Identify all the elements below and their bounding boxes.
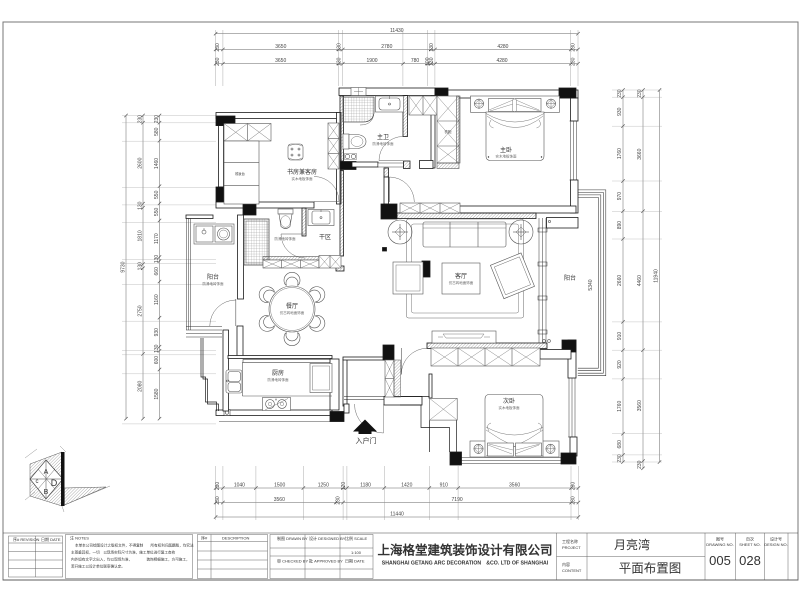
svg-text:A: A xyxy=(44,469,49,476)
svg-text:230: 230 xyxy=(617,454,623,463)
svg-text:3560: 3560 xyxy=(509,483,520,489)
svg-text:550: 550 xyxy=(154,190,160,199)
svg-text:主尊重其权，一切 以现场实际尺寸为准，施工单位进行复工查收: 主尊重其权，一切 以现场实际尺寸为准，施工单位进行复工查收 xyxy=(71,550,176,555)
svg-text:主卧: 主卧 xyxy=(500,146,512,154)
svg-text:910: 910 xyxy=(440,483,449,489)
svg-text:主卫: 主卫 xyxy=(377,133,389,141)
svg-text:230: 230 xyxy=(215,482,221,491)
svg-text:厨房: 厨房 xyxy=(272,369,284,377)
svg-text:DESIGN NO.: DESIGN NO. xyxy=(764,542,788,547)
svg-text:1250: 1250 xyxy=(318,483,329,489)
svg-text:230: 230 xyxy=(570,43,576,52)
svg-text:130: 130 xyxy=(429,57,435,66)
svg-text:防滑地砖饰面: 防滑地砖饰面 xyxy=(275,236,296,241)
svg-text:阳台: 阳台 xyxy=(564,274,576,282)
svg-text:970: 970 xyxy=(617,192,623,201)
svg-text:230: 230 xyxy=(335,496,341,505)
svg-text:3560: 3560 xyxy=(274,497,285,503)
svg-text:阳台: 阳台 xyxy=(207,273,219,281)
svg-text:230: 230 xyxy=(154,115,160,124)
svg-text:930: 930 xyxy=(617,107,623,116)
svg-text:上海格堂建筑装饰设计有限公司: 上海格堂建筑装饰设计有限公司 xyxy=(377,543,552,558)
svg-text:B: B xyxy=(44,489,49,496)
svg-text:日期 DATE: 日期 DATE xyxy=(345,558,365,564)
svg-text:仿古砖地面饰面: 仿古砖地面饰面 xyxy=(449,280,474,285)
svg-text:780: 780 xyxy=(411,58,420,64)
svg-text:930: 930 xyxy=(154,328,160,337)
svg-text:1420: 1420 xyxy=(401,483,412,489)
svg-text:实木地板饰面: 实木地板饰面 xyxy=(496,154,517,159)
svg-text:仿古砖地面饰面: 仿古砖地面饰面 xyxy=(280,310,305,315)
svg-text:CONTENT: CONTENT xyxy=(562,568,582,573)
svg-text:日期 DATE: 日期 DATE xyxy=(41,536,61,542)
svg-text:4460: 4460 xyxy=(637,275,643,286)
svg-text:1180: 1180 xyxy=(360,483,371,489)
svg-text:梳妆台: 梳妆台 xyxy=(235,171,245,176)
svg-text:注 NOTES: 注 NOTES xyxy=(70,535,89,541)
svg-text:序# REVISION: 序# REVISION xyxy=(13,536,40,542)
svg-text:1:100: 1:100 xyxy=(351,550,362,555)
svg-text:页次: 页次 xyxy=(746,536,754,542)
svg-text:图号: 图号 xyxy=(716,536,724,542)
svg-text:005: 005 xyxy=(709,553,731,568)
svg-text:内外如有文字之出入，均以现场为准， 装饰精细施工，方可: 内外如有文字之出入，均以现场为准， 装饰精细施工，方可施工， xyxy=(71,557,190,562)
svg-text:130: 130 xyxy=(137,262,143,271)
svg-text:SHANGHAI GETANG ARC DECORATION: SHANGHAI GETANG ARC DECORATION &CO. LTD … xyxy=(382,561,549,567)
svg-text:内容: 内容 xyxy=(562,561,570,567)
svg-text:1760: 1760 xyxy=(617,401,623,412)
svg-text:设计号: 设计号 xyxy=(770,536,782,542)
svg-text:1160: 1160 xyxy=(154,294,160,305)
svg-text:130: 130 xyxy=(337,43,343,52)
svg-text:230: 230 xyxy=(570,57,576,66)
svg-text:设计 DESIGNED BY: 设计 DESIGNED BY xyxy=(309,535,346,541)
svg-text:D: D xyxy=(51,478,58,488)
svg-text:120: 120 xyxy=(341,482,347,491)
svg-text:5340: 5340 xyxy=(588,279,594,290)
svg-text:11430: 11430 xyxy=(390,28,404,34)
svg-text:工程名称: 工程名称 xyxy=(562,538,578,544)
svg-text:230: 230 xyxy=(137,115,143,124)
svg-text:1580: 1580 xyxy=(154,388,160,399)
svg-text:660: 660 xyxy=(154,267,160,276)
svg-text:审 CHECKED BY: 审 CHECKED BY xyxy=(277,558,308,564)
svg-text:1040: 1040 xyxy=(234,483,245,489)
svg-text:实木地板饰面: 实木地板饰面 xyxy=(499,405,520,410)
svg-text:130: 130 xyxy=(137,201,143,210)
svg-text:2780: 2780 xyxy=(381,44,392,50)
svg-text:890: 890 xyxy=(617,221,623,230)
svg-text:入户门: 入户门 xyxy=(356,436,377,445)
svg-text:月亮湾: 月亮湾 xyxy=(614,537,650,552)
svg-text:3650: 3650 xyxy=(275,58,286,64)
svg-text:本单本公司绘图设计之版权文件，不得复制 所有权利归属翻版，: 本单本公司绘图设计之版权文件，不得复制 所有权利归属翻版，均究法 xyxy=(75,543,194,548)
svg-text:9730: 9730 xyxy=(120,261,126,272)
svg-text:干区: 干区 xyxy=(319,234,331,241)
svg-text:910: 910 xyxy=(617,332,623,341)
svg-text:130: 130 xyxy=(154,344,160,353)
svg-text:防滑地砖饰面: 防滑地砖饰面 xyxy=(268,377,289,382)
svg-text:230: 230 xyxy=(215,496,221,505)
svg-text:1810: 1810 xyxy=(137,230,143,241)
svg-text:序#: 序# xyxy=(201,535,208,541)
svg-text:若开施工以设计单位联审确认定。: 若开施工以设计单位联审确认定。 xyxy=(71,564,125,569)
svg-text:580: 580 xyxy=(154,127,160,136)
svg-text:DESCRIPTION: DESCRIPTION xyxy=(222,536,249,541)
svg-text:11440: 11440 xyxy=(390,512,404,518)
svg-text:制图 DRAWN BY: 制图 DRAWN BY xyxy=(277,535,308,541)
svg-text:11940: 11940 xyxy=(654,269,660,283)
svg-text:3650: 3650 xyxy=(275,44,286,50)
svg-text:4280: 4280 xyxy=(497,44,508,50)
svg-text:平面布置图: 平面布置图 xyxy=(619,562,682,576)
svg-text:4280: 4280 xyxy=(496,58,507,64)
svg-text:230: 230 xyxy=(637,89,643,98)
svg-text:130: 130 xyxy=(154,255,160,264)
svg-text:3660: 3660 xyxy=(637,148,643,159)
svg-text:批 APPROVED BY: 批 APPROVED BY xyxy=(309,558,343,564)
svg-text:2080: 2080 xyxy=(137,381,143,392)
svg-text:1900: 1900 xyxy=(366,58,377,64)
svg-text:230: 230 xyxy=(215,43,221,52)
svg-text:3560: 3560 xyxy=(637,400,643,411)
svg-text:230: 230 xyxy=(637,460,643,469)
svg-text:680: 680 xyxy=(617,440,623,449)
svg-text:230: 230 xyxy=(571,482,577,491)
svg-text:230: 230 xyxy=(571,496,577,505)
svg-text:1170: 1170 xyxy=(154,233,160,244)
svg-text:2600: 2600 xyxy=(137,157,143,168)
svg-text:客厅: 客厅 xyxy=(455,272,467,280)
svg-text:c: c xyxy=(36,479,39,485)
svg-text:130: 130 xyxy=(429,43,435,52)
svg-text:1760: 1760 xyxy=(617,148,623,159)
svg-text:餐厅: 餐厅 xyxy=(286,302,298,310)
svg-text:2660: 2660 xyxy=(617,275,623,286)
svg-text:550: 550 xyxy=(154,208,160,217)
svg-text:DRAWING NO.: DRAWING NO. xyxy=(706,542,733,547)
svg-text:防滑地砖饰面: 防滑地砖饰面 xyxy=(203,281,224,286)
svg-text:1460: 1460 xyxy=(154,158,160,169)
svg-text:028: 028 xyxy=(739,553,761,568)
svg-text:比例 SCALE: 比例 SCALE xyxy=(345,535,368,541)
svg-text:次卧: 次卧 xyxy=(503,397,515,405)
svg-text:1500: 1500 xyxy=(274,483,285,489)
svg-text:7190: 7190 xyxy=(452,497,463,503)
svg-text:SHEET NO.: SHEET NO. xyxy=(739,542,761,547)
svg-text:PROJECT: PROJECT xyxy=(562,545,581,550)
svg-text:实木地板饰面: 实木地板饰面 xyxy=(292,176,313,181)
svg-text:920: 920 xyxy=(617,360,623,369)
svg-text:书房兼客房: 书房兼客房 xyxy=(287,168,317,176)
svg-text:防滑地砖饰面: 防滑地砖饰面 xyxy=(373,141,394,146)
svg-text:衣柜: 衣柜 xyxy=(444,129,452,134)
svg-text:600: 600 xyxy=(154,356,160,365)
svg-text:130: 130 xyxy=(337,57,343,66)
svg-text:230: 230 xyxy=(215,57,221,66)
svg-text:230: 230 xyxy=(617,89,623,98)
svg-text:2750: 2750 xyxy=(137,305,143,316)
